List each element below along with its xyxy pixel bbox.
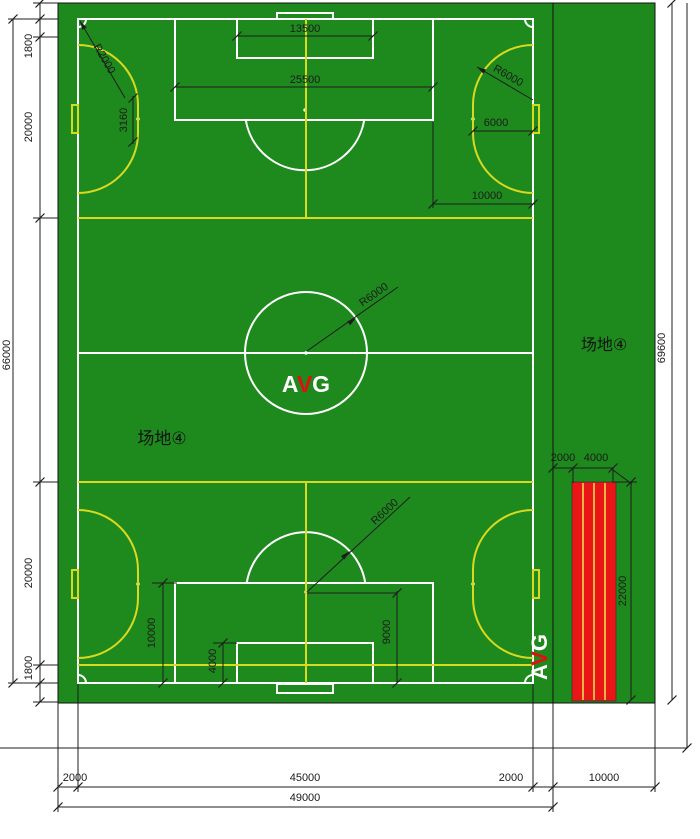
dim-bottom-field-width: 45000 — [290, 772, 321, 784]
dim-track-length: 22000 — [617, 576, 629, 607]
running-track-strip — [572, 482, 616, 701]
dim-bottom-margin-right: 2000 — [499, 772, 523, 784]
dim-arc-to-goal-line: 6000 — [484, 117, 508, 129]
avg-logo-v: V — [297, 371, 313, 397]
avg-logo2-v: V — [527, 651, 552, 666]
avg-logo-g: G — [312, 371, 330, 397]
cad-sheet: 场地④ 场地④ AVG AVG 66000 1800 20000 20000 1… — [0, 0, 700, 839]
dim-penalty-to-touchline: 10000 — [472, 190, 503, 202]
avg-logo-center: AVG — [282, 371, 330, 397]
dim-penalty-spot-distance: 9000 — [381, 620, 393, 644]
dim-right-total: 69600 — [656, 333, 668, 364]
dim-bottom-margin-left: 2000 — [63, 772, 87, 784]
dim-bottom-strip-width: 10000 — [589, 772, 620, 784]
dim-left-court-top: 20000 — [23, 112, 35, 143]
dim-goal-area-width: 13500 — [290, 23, 321, 35]
avg-logo-vertical: AVG — [527, 634, 552, 680]
dim-left-margin-bottom: 1800 — [23, 656, 35, 680]
dim-goal-area-depth: 4000 — [207, 649, 219, 673]
dim-track-width: 4000 — [584, 452, 608, 464]
dim-track-gap: 2000 — [551, 452, 575, 464]
dim-bottom-subtotal: 49000 — [290, 792, 321, 804]
field-name-label-right: 场地④ — [581, 335, 627, 354]
field-name-label-left: 场地④ — [137, 429, 186, 449]
dim-left-court-bottom: 20000 — [23, 558, 35, 589]
avg-logo2-g: G — [527, 634, 552, 651]
avg-logo-a: A — [282, 371, 298, 397]
dim-arc-offset: 3160 — [118, 108, 130, 132]
dim-left-margin-top: 1800 — [23, 34, 35, 58]
dim-penalty-area-width: 25500 — [290, 74, 321, 86]
dim-left-total: 66000 — [1, 340, 13, 371]
dim-penalty-area-depth: 10000 — [146, 618, 158, 649]
